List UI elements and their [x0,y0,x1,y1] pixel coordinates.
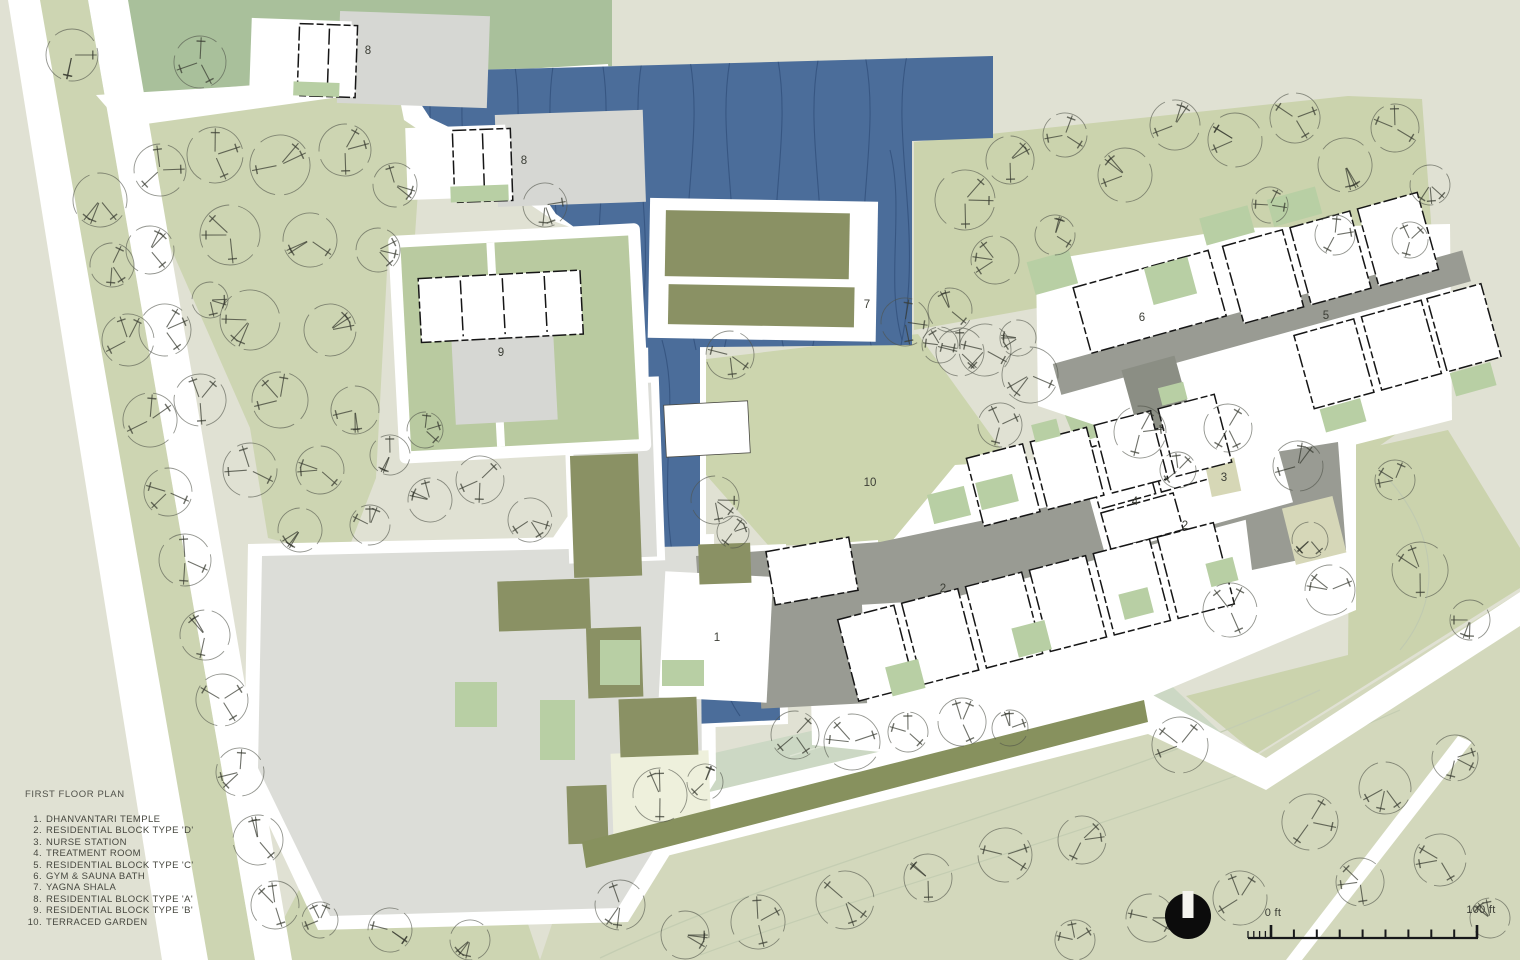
site-plan-drawing: 8897651043221 0 ft 100 ft [0,0,1520,960]
planter [540,700,575,760]
map-label: 2 [1182,520,1188,532]
planter [455,682,497,727]
plaza-planter [566,785,608,844]
planter [600,640,640,685]
yagna-shala [648,198,878,342]
map-label: 3 [1221,472,1227,484]
map-label: 7 [864,299,870,311]
plaza-planter [497,578,591,631]
planter [662,660,704,686]
legend-item: 3.NURSE STATION [25,837,194,848]
planter [450,185,509,203]
legend-item: 9.RESIDENTIAL BLOCK TYPE 'B' [25,905,194,916]
plaza-planter [618,697,698,758]
block-a-roof [495,110,646,207]
legend: FIRST FLOOR PLAN 1.DHANVANTARI TEMPLE2.R… [25,789,194,928]
legend-item: 8.RESIDENTIAL BLOCK TYPE 'A' [25,894,194,905]
map-label: 8 [521,155,527,167]
map-label: 5 [1323,310,1329,322]
legend-items: 1.DHANVANTARI TEMPLE2.RESIDENTIAL BLOCK … [25,814,194,928]
legend-title: FIRST FLOOR PLAN [25,789,194,800]
map-label: 9 [498,347,504,359]
plaza-planter [570,454,642,578]
scale-start-label: 0 ft [1265,907,1282,919]
legend-item: 10.TERRACED GARDEN [25,917,194,928]
stream-pavilion [664,401,751,457]
map-label: 8 [365,45,371,57]
yagna-hall-2 [668,284,855,327]
scale-end-label: 100 ft [1466,904,1495,916]
map-label: 2 [940,583,946,595]
block-b-main [418,270,583,342]
block-a-roof [337,11,490,108]
legend-item: 5.RESIDENTIAL BLOCK TYPE 'C' [25,860,194,871]
planter [293,81,339,97]
legend-item: 7.YAGNA SHALA [25,882,194,893]
map-label: 1 [714,632,720,644]
residential-block-b-compound [388,223,652,464]
map-label: 10 [864,477,877,489]
yagna-hall-1 [665,210,850,279]
map-label: 4 [1132,496,1139,508]
legend-item: 6.GYM & SAUNA BATH [25,871,194,882]
map-label: 6 [1139,312,1145,324]
legend-item: 4.TREATMENT ROOM [25,848,194,859]
legend-item: 2.RESIDENTIAL BLOCK TYPE 'D' [25,825,194,836]
legend-item: 1.DHANVANTARI TEMPLE [25,814,194,825]
plaza-planter [698,543,751,585]
site-plan-page: 8897651043221 0 ft 100 ft FIRST FLOOR PL… [0,0,1520,960]
